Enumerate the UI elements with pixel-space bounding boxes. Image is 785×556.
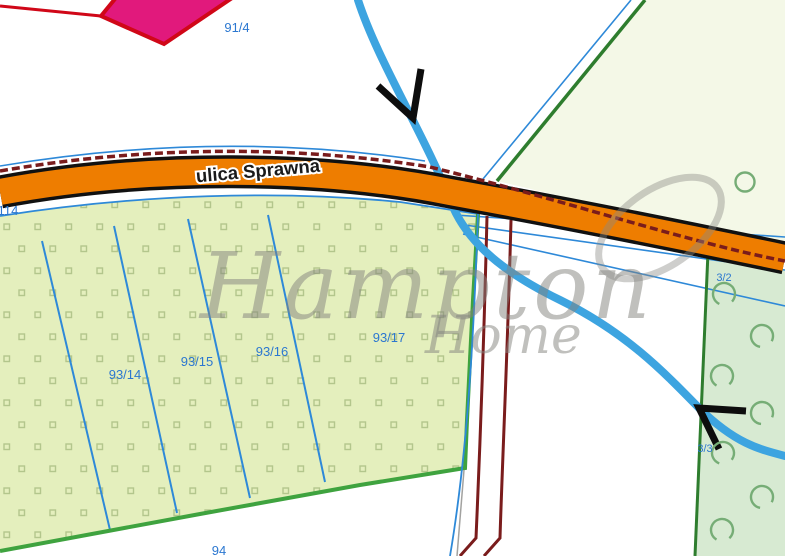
parcel-label-94: 94	[212, 543, 226, 556]
parcel-label-93-15: 93/15	[181, 354, 214, 369]
parcel-label-3-3: 3/3	[697, 443, 712, 455]
parcel-label-93-17: 93/17	[373, 330, 406, 345]
map-canvas[interactable]: Hampton Home ulica Sprawna 91/4 114 93/1…	[0, 0, 785, 556]
parcel-label-114: 114	[0, 203, 18, 218]
parcel-label-91-4: 91/4	[224, 20, 249, 35]
watermark-text-home: Home	[424, 306, 582, 366]
cadastral-map-svg: Hampton Home ulica Sprawna 91/4 114 93/1…	[0, 0, 785, 556]
parcel-label-3-2: 3/2	[716, 272, 731, 284]
parcel-label-93-16: 93/16	[256, 344, 289, 359]
parcel-label-93-14: 93/14	[109, 367, 142, 382]
parcel-area-mint	[695, 252, 785, 556]
